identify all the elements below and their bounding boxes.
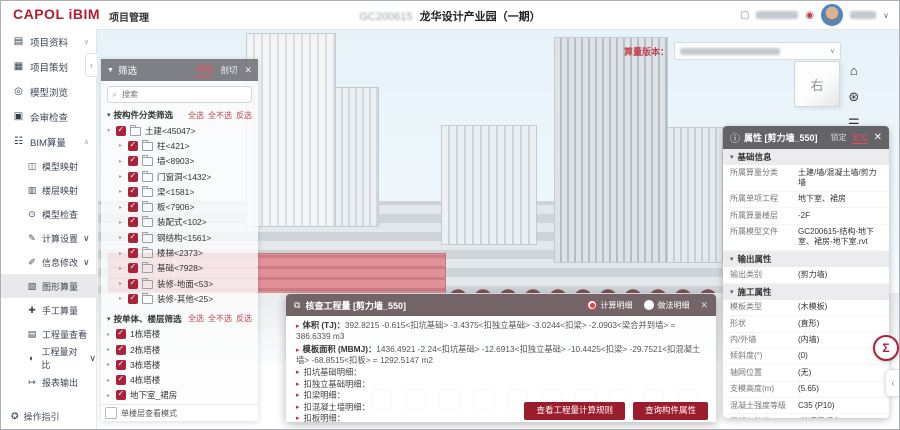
sigma-summary-button[interactable]: Σ [873, 335, 899, 361]
tree-item-label: 2栋塔楼 [130, 344, 160, 356]
building-tower-3b [667, 127, 727, 263]
checkbox-checked[interactable] [116, 329, 126, 339]
expand-item[interactable]: ▸ 扣梁明细： [296, 390, 706, 402]
property-value: (无) [798, 368, 882, 378]
sidebar-item-joint-review[interactable]: ▣ 会审检查 [1, 104, 96, 129]
caret-icon: ▾ [730, 255, 734, 263]
checkbox-checked[interactable] [128, 279, 138, 289]
caret-icon: ▸ [296, 391, 300, 400]
caret-icon[interactable]: ▸ [119, 219, 124, 226]
filter-group-by-component: ▾ 按构件分类筛选 全选 全不选 反选 [107, 109, 252, 121]
tree-item-label: 基础<7928> [157, 262, 203, 274]
chevron-left-icon: ‹ [90, 60, 93, 70]
property-key: 混凝土强度等级 [730, 401, 792, 411]
property-row: 支模高度(m) (5.65) [723, 382, 889, 398]
query-component-props-button[interactable]: 查询构件属性 [633, 402, 708, 420]
building-tower-3 [554, 37, 668, 263]
property-key: 倾斜度(°) [730, 351, 792, 361]
folder-icon [142, 188, 153, 197]
tree-item[interactable]: ▸ 钢结构<1561> [119, 230, 252, 245]
table-icon: ▤ [27, 329, 37, 340]
sidebar-item-calc-settings[interactable]: ✎ 计算设置 ∨ [1, 226, 96, 250]
mapping-icon: ◫ [27, 161, 37, 172]
chevron-down-icon: ∨ [89, 353, 96, 364]
sidebar-item-label: 图形算量 [42, 280, 78, 293]
volume-label: 体积 (TJ)： [303, 320, 345, 330]
caret-icon[interactable]: ▸ [107, 361, 112, 368]
info-icon: ⓘ [730, 130, 740, 145]
caret-icon[interactable]: ▸ [119, 250, 124, 257]
folder-icon [142, 234, 153, 243]
version-dropdown[interactable]: ∨ [674, 42, 841, 60]
property-value: (5.65) [798, 384, 882, 394]
checkbox-checked[interactable] [116, 126, 126, 136]
checkbox-checked[interactable] [128, 141, 138, 151]
sidebar-item-label: 项目策划 [30, 60, 68, 74]
checkbox-checked[interactable] [116, 345, 126, 355]
tree-item-label: 4栋塔楼 [130, 374, 160, 386]
edit-icon: ✐ [27, 257, 37, 268]
chevron-up-icon: ∧ [84, 138, 89, 146]
lock-link[interactable]: 锁定 [831, 132, 847, 143]
property-key: 支模高度(m) [730, 384, 792, 394]
tree-item[interactable]: ▸ 装配式<102> [119, 215, 252, 230]
filter-group-by-floor: ▾ 按单体、楼层筛选 全选 全不选 反选 [107, 313, 252, 325]
sigma-icon: Σ [882, 341, 889, 355]
user-menu-caret-icon[interactable]: ∨ [883, 11, 889, 20]
sidebar-item-label: 模型浏览 [30, 85, 68, 99]
property-value: -2F [798, 211, 882, 221]
sidebar-item-model-browse[interactable]: ◎ 模型浏览 [1, 79, 96, 104]
sidebar-item-label: 计算设置 [42, 232, 78, 245]
property-row: 所属算量楼层 -2F [723, 208, 889, 224]
export-icon: ↦ [27, 377, 37, 388]
doc-icon: ▤ [13, 36, 24, 47]
window-icon: ⧉ [294, 300, 300, 311]
logo-ibim: iBIM [69, 6, 101, 22]
section-title: 施工属性 [738, 286, 772, 298]
expand-item[interactable]: ▸ 扣独立基础明细： [296, 379, 706, 391]
expand-item[interactable]: ▸ 扣坑基础明细： [296, 367, 706, 379]
invert-select-link[interactable]: 反选 [236, 110, 252, 121]
caret-icon: ▾ [730, 153, 734, 161]
caret-icon[interactable]: ▸ [119, 142, 124, 149]
checkbox-checked[interactable] [128, 294, 138, 304]
radio-method-detail[interactable]: 做法明细 [644, 300, 689, 311]
select-none-link[interactable]: 全不选 [208, 313, 232, 324]
tree-item-label: 楼梯<2373> [157, 247, 203, 259]
dialog-body: ▸体积 (TJ)：392.8215 -0.615<扣坑基础> -3.4375<扣… [286, 316, 716, 425]
tree-item[interactable]: ▸ 板<7906> [119, 199, 252, 214]
radio-label: 做法明细 [657, 300, 689, 311]
checkbox-checked[interactable] [128, 248, 138, 258]
tree-item-label: 装修-地面<53> [157, 278, 213, 290]
properties-title: 属性 [剪力墙_550] [744, 131, 818, 144]
tab-visibility[interactable]: 显隐 [196, 63, 213, 77]
sidebar-item-manual-quantity[interactable]: ✚ 手工算量 [1, 298, 96, 322]
sidebar-footer-guide[interactable]: ✪ 操作指引 [11, 410, 60, 423]
version-label: 算量版本： [624, 45, 669, 58]
quantity-version-bar: 算量版本： ∨ [624, 42, 841, 60]
tree-item-label: 墙<8903> [157, 155, 194, 167]
property-row: 模板类型 (木模板) [723, 300, 889, 316]
tree-item[interactable]: ▾ 土建<45047> [107, 123, 252, 138]
sidebar-item-info-modify[interactable]: ✐ 信息修改 ∨ [1, 250, 96, 274]
tree-item-label: 1栋塔楼 [130, 328, 160, 340]
property-row: 输出类别 (剪力墙) [723, 267, 889, 283]
folder-icon [142, 280, 153, 289]
folder-icon [142, 295, 153, 304]
close-icon[interactable]: ✕ [244, 65, 252, 76]
property-key: 内/外墙 [730, 335, 792, 345]
tree-item-label: 钢结构<1561> [157, 232, 211, 244]
filter-panel: ▼ 筛选 显隐 剖切 ✕ ⌕ ▾ 按构件分类筛选 全选 全不选 反选 [101, 59, 258, 421]
chevron-down-icon: ∨ [830, 47, 835, 55]
caret-icon[interactable]: ▸ [107, 377, 112, 384]
tree-item-label: 板<7906> [157, 201, 194, 213]
guide-label: 操作指引 [24, 410, 60, 423]
filter-search[interactable]: ⌕ [107, 86, 252, 103]
sidebar-item-project-data[interactable]: ▤ 项目资料 ∨ [1, 29, 96, 54]
checkbox-checked[interactable] [116, 360, 126, 370]
property-key: 模板类型 [730, 302, 792, 312]
caret-icon[interactable]: ▸ [119, 234, 124, 241]
chevron-left-icon: ‹ [891, 378, 894, 389]
sidebar-item-label: BIM算量 [30, 135, 66, 149]
properties-body: ▾ 基础信息 所属算量分类 土建/墙/混凝土墙/剪力墙 所属单项工程 地下室、裙… [723, 149, 889, 418]
sidebar-item-label: 信息修改 [42, 256, 78, 269]
manual-icon: ✚ [27, 305, 37, 316]
property-key: 所属模型文件 [730, 227, 792, 248]
checkbox-checked[interactable] [128, 156, 138, 166]
building-tower-1 [246, 33, 336, 227]
sidebar-item-model-check[interactable]: ⊙ 模型检查 [1, 202, 96, 226]
header-actions: ▢ ◉ ∨ [740, 1, 889, 29]
folder-icon [142, 173, 153, 182]
pencil-icon: ✎ [27, 233, 37, 244]
module-label: 项目管理 [109, 9, 149, 24]
view-calc-rules-button[interactable]: 查看工程量计算规则 [524, 402, 625, 420]
single-floor-mode-label: 单楼层查看模式 [121, 408, 177, 419]
logo-capol: CAPOL [13, 6, 65, 22]
radio-label: 计算明细 [600, 300, 632, 311]
calc-icon: ☷ [13, 136, 24, 147]
caret-icon[interactable]: ▸ [119, 188, 124, 195]
chevron-down-icon: ∨ [84, 38, 89, 46]
volume-line: ▸体积 (TJ)：392.8215 -0.615<扣坑基础> -3.4375<扣… [296, 320, 706, 343]
sidebar-item-report-output[interactable]: ↦ 报表输出 [1, 370, 96, 394]
tree-item[interactable]: ▸ 3栋塔楼 [107, 357, 252, 372]
sidebar-item-label: 模型检查 [42, 208, 78, 221]
checkbox-checked[interactable] [128, 202, 138, 212]
search-input[interactable] [120, 89, 234, 100]
caret-icon[interactable]: ▸ [107, 392, 112, 399]
filter-panel-header: ▼ 筛选 显隐 剖切 ✕ [101, 59, 258, 81]
property-value: (木模板) [798, 302, 882, 312]
checkbox-unchecked[interactable] [105, 407, 117, 419]
checkbox-checked[interactable] [128, 187, 138, 197]
property-value: 土建/墙/混凝土墙/剪力墙 [798, 168, 882, 189]
property-row: 轴网位置 (无) [723, 365, 889, 381]
sidebar-item-label: 模型映射 [42, 160, 78, 173]
property-value: 地下室、裙房 [798, 194, 882, 204]
formwork-label: 模板面积 (MBMJ)： [303, 344, 377, 354]
tree-item[interactable]: ▸ 柱<421> [119, 138, 252, 153]
avatar[interactable] [821, 4, 843, 26]
sidebar-item-label: 工程量查看 [42, 328, 87, 341]
property-row: 所属模型文件 GC200615-结构-地下室、裙房-地下室.rvt [723, 225, 889, 252]
check-icon: ⊙ [27, 209, 37, 220]
checkbox-checked[interactable] [116, 390, 126, 400]
caret-icon[interactable]: ▸ [119, 204, 124, 211]
floor-icon: ▥ [27, 185, 37, 196]
caret-icon[interactable]: ▸ [119, 295, 124, 302]
tree-item-label: 3栋塔楼 [130, 359, 160, 371]
sidebar-item-label: 报表输出 [42, 376, 78, 389]
viewport-tools: ⌂ ⊛ ☰ [848, 63, 860, 132]
plan-icon: ▦ [13, 61, 24, 72]
property-value: (0) [798, 351, 882, 361]
section-output-props[interactable]: ▾ 输出属性 [723, 251, 889, 267]
tree-item[interactable]: ▸ 装修-地面<53> [119, 276, 252, 291]
select-all-link[interactable]: 全选 [188, 110, 204, 121]
folder-icon [142, 218, 153, 227]
section-basic-info[interactable]: ▾ 基础信息 [723, 149, 889, 165]
property-value: (剪力墙) [798, 270, 882, 280]
project-title: 龙华设计产业园（一期） [420, 11, 541, 23]
search-icon: ⌕ [112, 89, 117, 100]
sidebar-item-graphic-quantity[interactable]: ▧ 图形算量 [1, 274, 96, 298]
group-title: 按单体、楼层筛选 [114, 313, 182, 325]
check-quantity-dialog: ⧉ 核查工程量 [剪力墙_550] 计算明细 做法明细 ✕ ▸体积 (TJ)：3… [286, 294, 716, 422]
tree-item-label: 梁<1581> [157, 186, 194, 198]
caret-icon: ▸ [296, 403, 300, 412]
project-breadcrumb: GC200615 龙华设计产业园（一期） [359, 8, 540, 24]
radio-selected-icon [587, 300, 597, 310]
checkbox-checked[interactable] [128, 233, 138, 243]
folder-icon [142, 157, 153, 166]
caret-icon[interactable]: ▸ [119, 158, 124, 165]
property-value: (直形) [798, 319, 882, 329]
tree-item-label: 装配式<102> [157, 216, 207, 228]
section-title: 基础信息 [738, 151, 772, 163]
dialog-header[interactable]: ⧉ 核查工程量 [剪力墙_550] 计算明细 做法明细 ✕ [286, 294, 716, 316]
property-row: 混凝土种类 (普通混凝土) [723, 414, 889, 418]
bullet-icon: ▸ [296, 347, 300, 354]
sidebar-item-label: 工程量对比 [42, 345, 85, 371]
tree-item[interactable]: ▸ 基础<7928> [119, 261, 252, 276]
tree-item-label: 门窗洞<1432> [157, 171, 211, 183]
tab-section-cut[interactable]: 剖切 [220, 64, 237, 76]
caret-icon: ▸ [296, 368, 300, 377]
group-title: 按构件分类筛选 [114, 109, 174, 121]
folder-icon [142, 142, 153, 151]
bullet-icon: ▸ [296, 323, 300, 330]
section-construction-props[interactable]: ▾ 施工属性 [723, 284, 889, 300]
expand-item-label: 扣独立基础明细： [304, 379, 370, 390]
expand-item-label: 扣混凝土墙明细： [304, 402, 370, 413]
tree-item[interactable]: ▸ 1栋塔楼 [107, 327, 252, 342]
property-key: 所属单项工程 [730, 194, 792, 204]
model-icon: ◎ [13, 86, 24, 97]
property-row: 所属算量分类 土建/墙/混凝土墙/剪力墙 [723, 165, 889, 192]
checkbox-checked[interactable] [128, 217, 138, 227]
compare-icon: ◐ [27, 353, 37, 363]
chevron-down-icon: ∨ [83, 257, 90, 268]
radio-calc-detail[interactable]: 计算明细 [587, 300, 632, 311]
caret-icon[interactable]: ▸ [107, 346, 112, 353]
sidebar-item-model-mapping[interactable]: ◫ 模型映射 [1, 154, 96, 178]
caret-icon[interactable]: ▸ [119, 280, 124, 287]
tree-item[interactable]: ▸ 4栋塔楼 [107, 372, 252, 387]
property-key: 轴网位置 [730, 368, 792, 378]
tree-item-label: 柱<421> [157, 140, 190, 152]
panel-collapse-button[interactable]: ‹ [885, 369, 900, 397]
filter-title: 筛选 [118, 63, 137, 77]
tree-item[interactable]: ▸ 楼梯<2373> [119, 245, 252, 260]
message-icon[interactable]: ▢ [740, 10, 749, 21]
building-tower-1b [335, 87, 379, 227]
expand-item-label: 扣板明细： [304, 413, 346, 424]
tree-item[interactable]: ▸ 装修-其他<25> [119, 291, 252, 306]
radio-unselected-icon [644, 300, 654, 310]
app-logo: CAPOLiBIM [13, 6, 100, 22]
expand-item-label: 扣梁明细： [304, 390, 346, 401]
sidebar-item-label: 手工算量 [42, 304, 78, 317]
select-all-link[interactable]: 全选 [188, 313, 204, 324]
property-row: 所属单项工程 地下室、裙房 [723, 192, 889, 208]
checkbox-checked[interactable] [128, 172, 138, 182]
sidebar-item-bim-quantity[interactable]: ☷ BIM算量 ∧ [1, 129, 96, 154]
funnel-icon: ▼ [107, 67, 114, 74]
tree-item-label: 土建<45047> [145, 125, 196, 137]
folder-icon [142, 264, 153, 273]
view-cube-face-label: 右 [810, 75, 823, 94]
folder-icon [130, 127, 141, 136]
guide-icon: ✪ [11, 411, 19, 422]
property-value: (普通混凝土) [798, 417, 882, 418]
app-window: CAPOLiBIM 项目管理 GC200615 龙华设计产业园（一期） ▢ ◉ … [0, 0, 900, 430]
building-tower-2 [441, 125, 537, 245]
sidebar-collapse-button[interactable]: ‹ [85, 53, 97, 77]
caret-icon[interactable]: ▾ [107, 315, 111, 323]
caret-icon: ▸ [296, 414, 300, 423]
property-row: 倾斜度(°) (0) [723, 349, 889, 365]
tree-item[interactable]: ▸ 地下室_裙房 [107, 388, 252, 403]
service-icon[interactable]: ◉ [805, 10, 814, 21]
sidebar-item-quantity-view[interactable]: ▤ 工程量查看 [1, 322, 96, 346]
caret-icon[interactable]: ▸ [107, 331, 112, 338]
folder-icon [142, 249, 153, 258]
sidebar-item-project-plan[interactable]: ▦ 项目策划 ∨ [1, 54, 96, 79]
tree-item-label: 地下室_裙房 [130, 389, 177, 401]
top-header: CAPOLiBIM 项目管理 GC200615 龙华设计产业园（一期） ▢ ◉ … [1, 1, 899, 30]
caret-icon[interactable]: ▸ [119, 265, 124, 272]
project-code: GC200615 [359, 11, 412, 23]
dialog-title: 核查工程量 [剪力墙_550] [305, 299, 406, 312]
filter-panel-body: ⌕ ▾ 按构件分类筛选 全选 全不选 反选 ▾ 土建<45047> ▸ [101, 81, 258, 404]
section-title: 输出属性 [738, 253, 772, 265]
review-icon: ▣ [13, 111, 24, 122]
sidebar-item-floor-mapping[interactable]: ▥ 楼层映射 [1, 178, 96, 202]
home-icon[interactable]: ⌂ [848, 63, 860, 78]
property-value: (内墙) [798, 335, 882, 345]
checkbox-checked[interactable] [116, 375, 126, 385]
caret-icon[interactable]: ▾ [107, 111, 111, 119]
tree-item[interactable]: ▸ 梁<1581> [119, 184, 252, 199]
tree-item[interactable]: ▸ 门窗洞<1432> [119, 169, 252, 184]
sidebar-item-label: 楼层映射 [42, 184, 78, 197]
close-icon[interactable]: ✕ [700, 300, 708, 311]
property-key: 形状 [730, 319, 792, 329]
chevron-down-icon: ∨ [83, 233, 90, 244]
caret-icon[interactable]: ▸ [119, 173, 124, 180]
formwork-line: ▸模板面积 (MBMJ)：1436.4921 -2.24<扣坑基础> -12.6… [296, 344, 706, 367]
tree-item-label: 装修-其他<25> [157, 293, 213, 305]
sidebar-item-label: 会审检查 [30, 110, 68, 124]
property-key: 输出类别 [730, 270, 792, 280]
property-key: 所属算量楼层 [730, 211, 792, 221]
expand-item-label: 扣坑基础明细： [304, 367, 362, 378]
tree-item[interactable]: ▸ 2栋塔楼 [107, 342, 252, 357]
property-row: 内/外墙 (内墙) [723, 333, 889, 349]
locate-link[interactable]: 定位 [852, 132, 868, 144]
caret-icon[interactable]: ▾ [107, 127, 112, 134]
graphic-icon: ▧ [27, 281, 37, 292]
redacted-version-value [680, 48, 780, 55]
property-key: 所属算量分类 [730, 168, 792, 189]
properties-header: ⓘ 属性 [剪力墙_550] 锁定 定位 ✕ [723, 126, 889, 149]
close-icon[interactable]: ✕ [874, 132, 882, 143]
sidebar-nav: ▤ 项目资料 ∨ ▦ 项目策划 ∨ ◎ 模型浏览 ▣ 会审检查 ☷ BIM算量 … [1, 29, 97, 429]
sidebar-item-label: 项目资料 [30, 35, 68, 49]
property-value: GC200615-结构-地下室、裙房-地下室.rvt [798, 227, 882, 248]
properties-panel: ⓘ 属性 [剪力墙_550] 锁定 定位 ✕ ▾ 基础信息 所属算量分类 土建/… [723, 126, 889, 418]
select-none-link[interactable]: 全不选 [208, 110, 232, 121]
checkbox-checked[interactable] [128, 263, 138, 273]
orbit-icon[interactable]: ⊛ [848, 89, 860, 105]
filter-footer: 单楼层查看模式 [101, 404, 258, 421]
folder-icon [142, 203, 153, 212]
sidebar-item-quantity-compare[interactable]: ◐ 工程量对比 ∨ [1, 346, 96, 370]
property-row: 形状 (直形) [723, 316, 889, 332]
property-row: 混凝土强度等级 C35 (P10) [723, 398, 889, 414]
redacted-username [850, 11, 876, 19]
property-key: 混凝土种类 [730, 417, 792, 418]
redacted-date-text [756, 11, 798, 19]
caret-icon: ▾ [730, 288, 734, 296]
caret-icon: ▸ [296, 380, 300, 389]
tree-item[interactable]: ▸ 墙<8903> [119, 154, 252, 169]
volume-formula: 392.8215 -0.615<扣坑基础> -3.4375<扣独立基础> -3.… [296, 320, 675, 341]
view-cube[interactable]: 右 [794, 61, 840, 107]
property-value: C35 (P10) [798, 401, 882, 411]
invert-select-link[interactable]: 反选 [236, 313, 252, 324]
